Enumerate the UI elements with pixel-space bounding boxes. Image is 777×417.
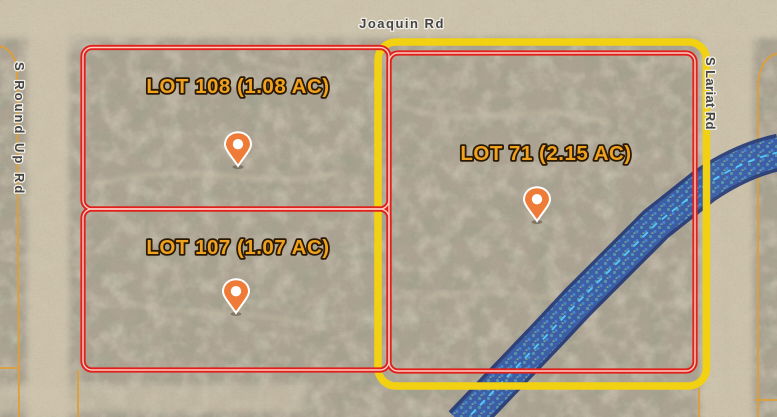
lot-107-label: LOT 107 (1.07 AC) (146, 236, 329, 259)
road-label-joaquin-rd: Joaquin Rd (359, 16, 445, 31)
lot-71-label: LOT 71 (2.15 AC) (460, 142, 631, 165)
map-svg: Joaquin Rd S Round Up Rd S Lariat Rd LOT… (0, 0, 777, 417)
lot-108-label: LOT 108 (1.08 AC) (146, 75, 329, 98)
road-label-s-lariat-rd: S Lariat Rd (703, 57, 718, 130)
map-canvas[interactable]: Joaquin Rd S Round Up Rd S Lariat Rd LOT… (0, 0, 777, 417)
road-label-s-round-up-rd: S Round Up Rd (12, 62, 27, 196)
